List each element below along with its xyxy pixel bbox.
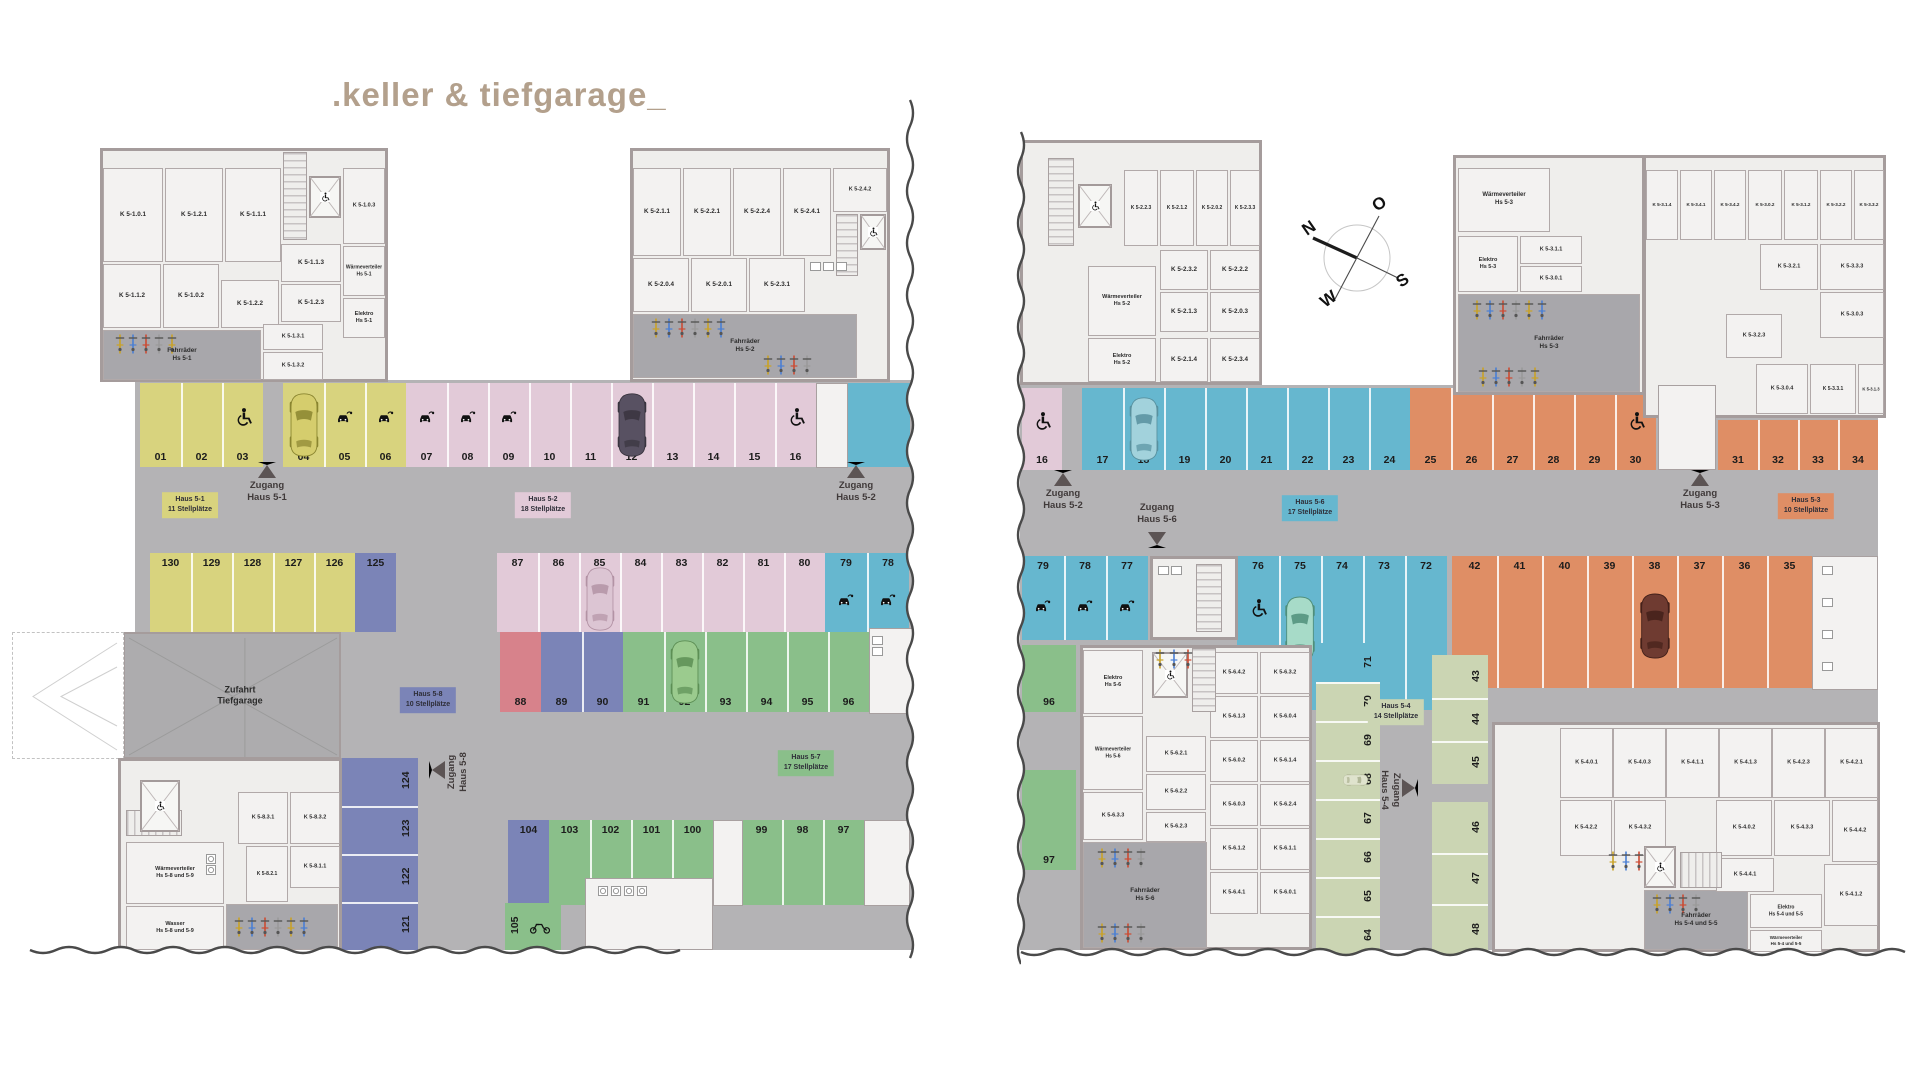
storage-rack-icon <box>836 262 847 271</box>
room-label: K 5-2.1.3 <box>1171 308 1197 316</box>
elevator-icon <box>309 176 341 218</box>
bicycle-icon <box>1097 847 1107 869</box>
room-label: K 5-1.1.1 <box>240 211 266 219</box>
bicycle-icon <box>1517 366 1527 388</box>
bicycle-icon <box>141 333 151 355</box>
bicycle-icon <box>1608 850 1618 872</box>
bicycle-icon <box>802 354 812 376</box>
room-label: K 5-4.3.3 <box>1791 824 1814 831</box>
room-label: K 5-6.3.3 <box>1102 812 1125 819</box>
bicycle-icon <box>703 317 713 339</box>
room-label: Elektro Hs 5-3 <box>1479 257 1498 271</box>
stall-number-09: 09 <box>488 451 529 463</box>
stall-number-39: 39 <box>1587 560 1632 572</box>
parking-stall-40 <box>1542 556 1587 688</box>
room-label: K 5-3.0.4 <box>1771 385 1794 392</box>
stall-number-96: 96 <box>1022 696 1076 708</box>
utility-room-5 <box>1658 385 1716 470</box>
zufahrt-label: Zufahrt Tiefgarage <box>217 684 262 707</box>
bicycle-icon <box>1155 648 1165 670</box>
bicycle-icon <box>1136 922 1146 944</box>
stall-number-94: 94 <box>746 696 787 708</box>
storage-rack-icon <box>872 636 883 645</box>
stall-number-32: 32 <box>1758 454 1798 466</box>
room-label: K 5-3.2.1 <box>1778 263 1801 270</box>
stall-number-91: 91 <box>623 696 664 708</box>
bike-room-label: Fahrräder Hs 5-6 <box>1130 887 1159 903</box>
stall-number-23: 23 <box>1328 454 1369 466</box>
bicycle-icon <box>247 916 257 938</box>
room-label: K 5-3.1.4 <box>1653 202 1672 208</box>
storage-rack-icon <box>872 647 883 656</box>
room-label: K 5-2.1.1 <box>644 208 670 216</box>
ev-charging-icon <box>377 409 394 424</box>
bicycle-icon <box>651 317 661 339</box>
stairs-icon <box>1680 852 1722 888</box>
stall-number-95: 95 <box>787 696 828 708</box>
bicycle-icon <box>128 333 138 355</box>
elevator-icon <box>1078 184 1112 228</box>
stall-number-19: 19 <box>1164 454 1205 466</box>
room-label: K 5-4.0.2 <box>1733 824 1756 831</box>
stall-number-24: 24 <box>1369 454 1410 466</box>
stall-number-42: 42 <box>1452 560 1497 572</box>
bicycle-icon <box>1183 648 1193 670</box>
room-label: K 5-4.4.2 <box>1844 827 1867 834</box>
room-label: K 5-2.3.4 <box>1222 356 1248 364</box>
utility-room-0 <box>816 383 848 468</box>
room-label: Wärmeverteiler Hs 5-1 <box>346 265 382 278</box>
bicycle-icon <box>1110 922 1120 944</box>
storage-rack-icon <box>1822 566 1833 575</box>
bicycle-icon <box>677 317 687 339</box>
room-label: K 5-6.0.2 <box>1223 757 1246 764</box>
stall-number-80: 80 <box>784 557 825 569</box>
storage-rack-icon <box>1822 630 1833 639</box>
stall-number-125: 125 <box>355 557 396 569</box>
room-label: K 5-1.1.3 <box>298 259 324 267</box>
stall-number-15: 15 <box>734 451 775 463</box>
stall-number-03: 03 <box>222 451 263 463</box>
zugang-label: Zugang Haus 5-6 <box>1137 502 1177 526</box>
room-label: K 5-4.2.3 <box>1787 759 1810 766</box>
room-label: K 5-6.2.1 <box>1165 750 1188 757</box>
stall-number-27: 27 <box>1492 454 1533 466</box>
stall-number-66: 66 <box>1362 849 1374 865</box>
parking-stall-37 <box>1677 556 1722 688</box>
room-label: K 5-3.2.3 <box>1743 332 1766 339</box>
floorplan-canvas: .keller & tiefgarage_ Zufahrt Tiefgarage… <box>0 0 1920 1080</box>
room-label: K 5-1.3.2 <box>282 362 305 369</box>
stall-number-26: 26 <box>1451 454 1492 466</box>
room-label: K 5-4.3.2 <box>1629 824 1652 831</box>
stall-number-96: 96 <box>828 696 869 708</box>
zugang-label: Zugang Haus 5-2 <box>836 480 876 504</box>
stall-number-89: 89 <box>541 696 582 708</box>
room-label: K 5-3.0.1 <box>1540 275 1563 282</box>
bike-room-label: Fahrräder Hs 5-4 und 5-5 <box>1674 912 1717 928</box>
stall-number-35: 35 <box>1767 560 1812 572</box>
room-label: K 5-3.1.1 <box>1540 246 1563 253</box>
room-label: Elektro Hs 5-1 <box>355 311 374 325</box>
stall-number-25: 25 <box>1410 454 1451 466</box>
room-label: K 5-4.2.2 <box>1575 824 1598 831</box>
room-label: Wärmeverteiler Hs 5-2 <box>1102 294 1142 308</box>
stall-number-40: 40 <box>1542 560 1587 572</box>
washer-icon <box>206 865 216 875</box>
bicycle-icon <box>1136 847 1146 869</box>
zugang-arrow <box>258 462 276 478</box>
zugang-arrow <box>429 761 445 779</box>
room-label: K 5-4.0.3 <box>1628 759 1651 766</box>
stall-number-122: 122 <box>400 869 412 885</box>
bicycle-icon <box>1498 299 1508 321</box>
stairs-icon <box>1196 564 1222 632</box>
stall-number-87: 87 <box>497 557 538 569</box>
stall-number-08: 08 <box>447 451 488 463</box>
bicycle-icon <box>1491 366 1501 388</box>
stall-number-100: 100 <box>672 824 713 836</box>
room-label: K 5-6.0.4 <box>1274 713 1297 720</box>
parking-stall-35 <box>1767 556 1812 688</box>
stall-number-48: 48 <box>1470 921 1482 937</box>
stall-number-47: 47 <box>1470 870 1482 886</box>
stellplatz-badge: Haus 5-2 18 Stellplätze <box>515 492 571 518</box>
stall-number-06: 06 <box>365 451 406 463</box>
bicycle-icon <box>1123 847 1133 869</box>
bike-room-label: Fahrräder Hs 5-3 <box>1534 335 1563 351</box>
stall-number-86: 86 <box>538 557 579 569</box>
stall-number-126: 126 <box>314 557 355 569</box>
bicycle-icon <box>1485 299 1495 321</box>
stall-number-33: 33 <box>1798 454 1838 466</box>
stall-number-45: 45 <box>1470 754 1482 770</box>
room-label: K 5-2.1.2 <box>1167 205 1188 212</box>
bicycle-icon <box>273 916 283 938</box>
stall-number-73: 73 <box>1363 560 1405 572</box>
stall-number-17: 17 <box>1082 454 1123 466</box>
stall-number-79: 79 <box>1022 560 1064 572</box>
room-label: Wasser Hs 5-8 und 5-9 <box>156 921 194 935</box>
storage-rack-icon <box>1822 662 1833 671</box>
elevator-icon <box>140 780 180 832</box>
washer-icon <box>206 854 216 864</box>
stall-number-67: 67 <box>1362 810 1374 826</box>
car-top-view <box>669 640 701 704</box>
stall-number-128: 128 <box>232 557 273 569</box>
bicycle-icon <box>776 354 786 376</box>
room-label: K 5-8.3.1 <box>252 814 275 821</box>
zugang-arrow <box>1054 470 1072 486</box>
room-label: K 5-1.2.2 <box>237 300 263 308</box>
room-label: Wärmeverteiler Hs 5-3 <box>1482 192 1525 208</box>
car-top-view <box>616 393 648 457</box>
bicycle-icon <box>1537 299 1547 321</box>
stall-number-02: 02 <box>181 451 222 463</box>
room-label: K 5-1.3.1 <box>282 333 305 340</box>
car-top-view <box>288 393 320 457</box>
stall-number-13: 13 <box>652 451 693 463</box>
room-label: K 5-4.4.1 <box>1734 871 1757 878</box>
room-label: K 5-1.0.2 <box>178 292 204 300</box>
room-label: K 5-2.2.1 <box>694 208 720 216</box>
room-label: K 5-4.0.1 <box>1575 759 1598 766</box>
stall-number-104: 104 <box>508 824 549 836</box>
room-label: K 5-3.0.2 <box>1756 202 1775 208</box>
car-top-view <box>584 567 616 631</box>
bicycle-icon <box>115 333 125 355</box>
stall-number-46: 46 <box>1470 819 1482 835</box>
bicycle-icon <box>1123 922 1133 944</box>
bike-room-label: Fahrräder Hs 5-1 <box>167 347 196 363</box>
stall-number-05: 05 <box>324 451 365 463</box>
room-label: K 5-6.3.2 <box>1274 669 1297 676</box>
room-label: K 5-8.2.1 <box>257 871 278 878</box>
zugang-arrow <box>1691 470 1709 486</box>
parking-stall-39 <box>1587 556 1632 688</box>
room-label: K 5-6.0.1 <box>1274 889 1297 896</box>
stall-number-98: 98 <box>782 824 823 836</box>
zugang-label: Zugang Haus 5-3 <box>1680 488 1720 512</box>
stellplatz-badge: Haus 5-4 14 Stellplätze <box>1368 699 1424 725</box>
stall-number-105: 105 <box>509 918 521 934</box>
stall-number-07: 07 <box>406 451 447 463</box>
room-label: K 5-2.0.3 <box>1222 308 1248 316</box>
room-label: K 5-1.2.1 <box>181 211 207 219</box>
svg-text:S: S <box>1392 269 1412 291</box>
svg-text:O: O <box>1368 196 1390 215</box>
stairs-icon <box>1192 648 1216 712</box>
room-label: K 5-3.3.3 <box>1841 263 1864 270</box>
car-top-view <box>1128 397 1160 461</box>
room-label: K 5-6.2.4 <box>1274 801 1297 808</box>
room-label: K 5-4.1.3 <box>1734 759 1757 766</box>
stall-number-72: 72 <box>1405 560 1447 572</box>
zugang-label: Zugang Haus 5-1 <box>247 480 287 504</box>
stellplatz-badge: Haus 5-8 10 Stellplätze <box>400 687 456 713</box>
stall-number-29: 29 <box>1574 454 1615 466</box>
bicycle-icon <box>1169 648 1179 670</box>
bicycle-icon <box>789 354 799 376</box>
bicycle-icon <box>1097 922 1107 944</box>
room-label: K 5-2.3.2 <box>1171 266 1197 274</box>
ev-charging-icon <box>500 409 517 424</box>
stall-number-93: 93 <box>705 696 746 708</box>
stall-number-124: 124 <box>400 773 412 789</box>
room-label: K 5-8.1.1 <box>304 863 327 870</box>
stairs-icon <box>283 152 307 240</box>
stall-number-64: 64 <box>1362 927 1374 943</box>
room-label: K 5-2.4.2 <box>849 186 872 193</box>
washer-icon <box>624 886 634 896</box>
stellplatz-badge: Haus 5-7 17 Stellplätze <box>778 750 834 776</box>
stall-number-65: 65 <box>1362 888 1374 904</box>
ev-charging-icon <box>459 409 476 424</box>
room-label: K 5-2.2.2 <box>1222 266 1248 274</box>
storage-rack-icon <box>823 262 834 271</box>
ev-charging-icon <box>1119 599 1136 614</box>
storage-rack-icon <box>1822 598 1833 607</box>
wheelchair-icon <box>785 407 807 427</box>
room-label: K 5-2.0.4 <box>648 281 674 289</box>
stall-number-130: 130 <box>150 557 191 569</box>
washer-icon <box>598 886 608 896</box>
stall-number-44: 44 <box>1470 711 1482 727</box>
room-label: K 5-1.2.3 <box>298 299 324 307</box>
room-label: K 5-2.0.2 <box>1202 205 1223 212</box>
washer-icon <box>611 886 621 896</box>
bicycle-icon <box>1634 850 1644 872</box>
stall-number-28: 28 <box>1533 454 1574 466</box>
bicycle-icon <box>664 317 674 339</box>
room-label: K 5-3.4.1 <box>1687 202 1706 208</box>
bicycle-icon <box>1472 299 1482 321</box>
room-label: K 5-2.2.4 <box>744 208 770 216</box>
stall-number-90: 90 <box>582 696 623 708</box>
room-label: K 5-2.3.3 <box>1235 205 1256 212</box>
stall-number-37: 37 <box>1677 560 1722 572</box>
storage-rack-icon <box>810 262 821 271</box>
bicycle-icon <box>1652 893 1662 915</box>
stall-number-78: 78 <box>1064 560 1106 572</box>
wheelchair-icon <box>1247 598 1269 618</box>
stall-number-81: 81 <box>743 557 784 569</box>
room-label: K 5-3.3.2 <box>1860 202 1879 208</box>
room-label: K 5-2.2.3 <box>1131 205 1152 212</box>
stall-number-01: 01 <box>140 451 181 463</box>
stall-number-31: 31 <box>1718 454 1758 466</box>
room-label: K 5-1.0.1 <box>120 211 146 219</box>
wheelchair-icon <box>1031 411 1053 431</box>
room-label: K 5-3.3.1 <box>1823 386 1844 393</box>
stall-number-74: 74 <box>1321 560 1363 572</box>
zugang-arrow <box>1402 779 1418 797</box>
stall-number-88: 88 <box>500 696 541 708</box>
room-label: K 5-1.0.3 <box>353 202 376 209</box>
parking-stall-edge <box>848 383 910 467</box>
svg-text:W: W <box>1316 286 1341 311</box>
stellplatz-badge: Haus 5-1 11 Stellplätze <box>162 492 218 518</box>
room-label: K 5-6.1.1 <box>1274 845 1297 852</box>
room-label: K 5-6.1.4 <box>1274 757 1297 764</box>
stall-number-78: 78 <box>867 557 909 569</box>
room-label: Wärmeverteiler Hs 5-8 und 5-9 <box>155 866 195 880</box>
stall-number-20: 20 <box>1205 454 1246 466</box>
stall-number-43: 43 <box>1470 668 1482 684</box>
stall-number-34: 34 <box>1838 454 1878 466</box>
room-label: Wärmeverteiler Hs 5-6 <box>1095 747 1131 760</box>
storage-rack-icon <box>1158 566 1169 575</box>
stall-number-83: 83 <box>661 557 702 569</box>
bike-room-label: Fahrräder Hs 5-2 <box>730 338 759 354</box>
stall-number-121: 121 <box>400 917 412 933</box>
room-label: K 5-2.1.4 <box>1171 356 1197 364</box>
room-label: K 5-3.0.3 <box>1841 311 1864 318</box>
stall-number-69: 69 <box>1362 732 1374 748</box>
bicycle-icon <box>1478 366 1488 388</box>
car-top-view <box>1639 570 1671 682</box>
wheelchair-icon <box>232 407 254 427</box>
room-label: K 5-4.2.1 <box>1840 759 1863 766</box>
room-label: K 5-8.3.2 <box>304 814 327 821</box>
room-label: K 5-6.4.1 <box>1223 889 1246 896</box>
room-label: Elektro Hs 5-6 <box>1104 675 1123 689</box>
bicycle-icon <box>154 333 164 355</box>
ev-charging-icon <box>336 409 353 424</box>
room-label: K 5-6.0.3 <box>1223 801 1246 808</box>
bicycle-icon <box>690 317 700 339</box>
stellplatz-badge: Haus 5-6 17 Stellplätze <box>1282 495 1338 521</box>
room-label: K 5-6.1.3 <box>1223 713 1246 720</box>
zugang-label: Zugang Haus 5-4 <box>1378 770 1402 810</box>
bicycle-icon <box>286 916 296 938</box>
stall-number-22: 22 <box>1287 454 1328 466</box>
stall-number-127: 127 <box>273 557 314 569</box>
stall-number-97: 97 <box>823 824 864 836</box>
ev-charging-icon <box>880 593 897 608</box>
stall-number-129: 129 <box>191 557 232 569</box>
stairs-icon <box>1048 158 1074 246</box>
ramp-area <box>12 632 124 759</box>
stall-number-84: 84 <box>620 557 661 569</box>
room-label: K 5-4.1.2 <box>1840 891 1863 898</box>
room-label: K 5-6.1.2 <box>1223 845 1246 852</box>
stall-number-79: 79 <box>825 557 867 569</box>
stall-number-123: 123 <box>400 821 412 837</box>
room-label: K 5-2.4.1 <box>794 208 820 216</box>
bicycle-icon <box>1530 366 1540 388</box>
room-label: Wärmeverteiler Hs 5-4 und 5-5 <box>1770 935 1803 947</box>
storage-rack-icon <box>1171 566 1182 575</box>
compass-rose: NOWS <box>1295 196 1425 316</box>
page-title: .keller & tiefgarage_ <box>332 76 667 114</box>
bicycle-icon <box>1504 366 1514 388</box>
parking-stall-36 <box>1722 556 1767 688</box>
room-label: K 5-3.1.2 <box>1792 202 1811 208</box>
bicycle-icon <box>260 916 270 938</box>
elevator-icon <box>860 214 886 250</box>
bicycle-icon <box>716 317 726 339</box>
bicycle-icon <box>1621 850 1631 872</box>
stall-number-11: 11 <box>570 451 611 463</box>
bicycle-icon <box>299 916 309 938</box>
stall-number-97: 97 <box>1022 854 1076 866</box>
stellplatz-badge: Haus 5-3 10 Stellplätze <box>1778 493 1834 519</box>
stall-number-30: 30 <box>1615 454 1656 466</box>
ev-charging-icon <box>1035 599 1052 614</box>
room-label: K 5-2.3.1 <box>764 281 790 289</box>
moped-icon <box>529 917 551 937</box>
room-label: K 5-1.1.2 <box>119 292 145 300</box>
room-label: K 5-4.1.1 <box>1681 759 1704 766</box>
stall-number-36: 36 <box>1722 560 1767 572</box>
zugang-label: Zugang Haus 5-8 <box>446 752 470 792</box>
room-label: K 5-6.4.2 <box>1223 669 1246 676</box>
stall-number-41: 41 <box>1497 560 1542 572</box>
room-label: K 5-3.4.2 <box>1721 202 1740 208</box>
room-label: K 5-3.1.3 <box>1862 386 1879 391</box>
stall-number-21: 21 <box>1246 454 1287 466</box>
utility-room-2 <box>713 820 743 906</box>
svg-text:N: N <box>1298 217 1319 240</box>
bicycle-icon <box>763 354 773 376</box>
bicycle-icon <box>234 916 244 938</box>
stall-number-101: 101 <box>631 824 672 836</box>
ev-charging-icon <box>418 409 435 424</box>
ev-charging-icon <box>838 593 855 608</box>
bicycle-icon <box>1524 299 1534 321</box>
utility-room-4 <box>864 820 910 906</box>
